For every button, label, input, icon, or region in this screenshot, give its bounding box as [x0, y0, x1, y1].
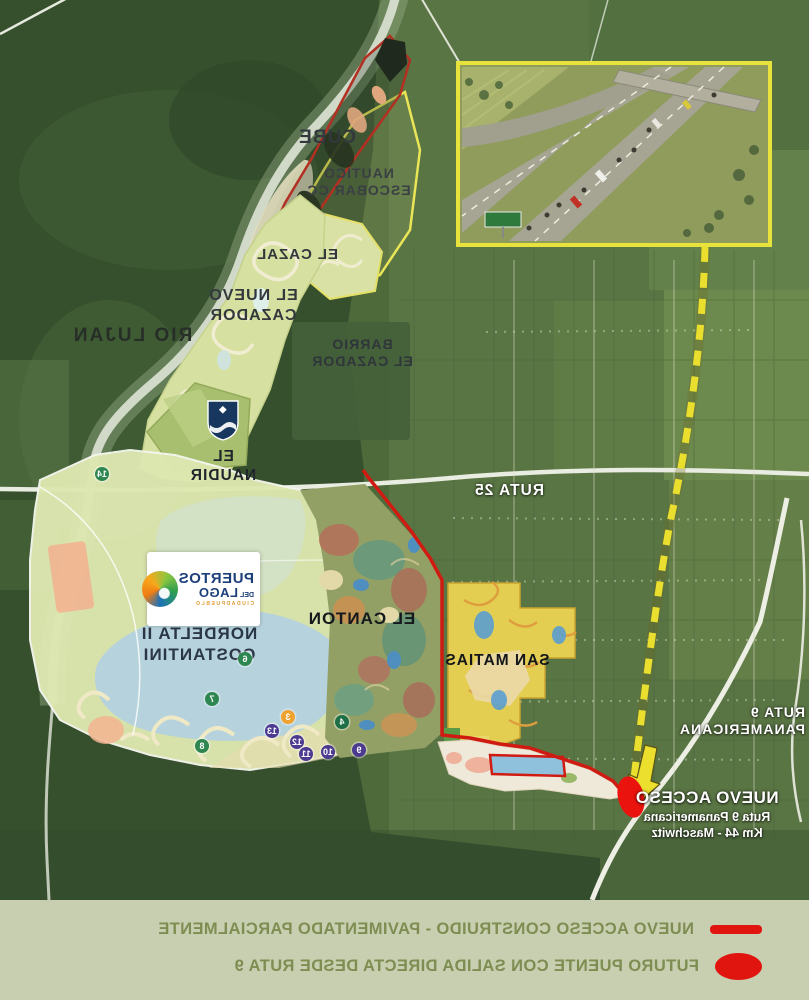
- logo-line2: LAGO: [198, 586, 238, 599]
- label-el-naudir: EL NAUDIR: [177, 448, 269, 486]
- puertos-del-lago-logo: PUERTOS DEL LAGO CIUDADPUEBLO: [147, 552, 260, 626]
- crystal-lagoon: [490, 755, 565, 776]
- el-naudir-shield-icon: [208, 401, 238, 440]
- puertos-logo-globe-icon: [142, 571, 178, 607]
- legend-row-built-access: NUEVO ACCESO CONSTRUIDO - PAVIMENTADO PA…: [0, 920, 809, 939]
- logo-del: DEL: [240, 592, 254, 599]
- label-el-cazal: EL CAZAL: [255, 246, 339, 264]
- nuevo-acceso-title: NUEVO ACCESO: [627, 788, 787, 808]
- label-cube: CUBE: [292, 126, 362, 149]
- lot-badge: 14: [95, 467, 109, 481]
- logo-subtitle: CIUDADPUEBLO: [195, 602, 254, 607]
- legend-label-built-access: NUEVO ACCESO CONSTRUIDO - PAVIMENTADO PA…: [158, 920, 694, 939]
- lot-badge: 7: [205, 692, 219, 706]
- lot-badge: 13: [265, 724, 279, 738]
- label-barrio-el-cazador: BARRIO EL CAZADOR: [307, 336, 417, 370]
- red-line-symbol: [710, 925, 762, 934]
- lot-badge: 9: [352, 743, 366, 757]
- label-ruta-9-panamericana: RUTA 9 PANAMERICANA: [655, 704, 805, 738]
- highway-inset: [458, 63, 770, 245]
- nuevo-acceso-annotation: NUEVO ACCESO Ruta 9 Panamericana Km 44 -…: [627, 788, 787, 840]
- lot-badge: 10: [321, 745, 335, 759]
- nuevo-acceso-line2: Ruta 9 Panamericana: [627, 810, 787, 824]
- label-ruta-25: RUTA 25: [454, 482, 564, 501]
- red-ellipse-symbol: [715, 953, 762, 980]
- nuevo-acceso-line3: Km 44 - Maschwitz: [627, 826, 787, 840]
- label-el-nuevo-cazador: EL NUEVO CAZADOR: [203, 286, 303, 325]
- puertos-logo-text: PUERTOS DEL LAGO CIUDADPUEBLO: [178, 571, 254, 608]
- legend: NUEVO ACCESO CONSTRUIDO - PAVIMENTADO PA…: [0, 900, 809, 1000]
- satellite-map: [0, 0, 809, 900]
- mirrored-map-screenshot: CUBE NAUTICO ESCOBAR CC EL CAZAL EL NUEV…: [0, 0, 809, 1000]
- label-san-matias: SAN MATIAS: [443, 652, 551, 671]
- lot-badge: 6: [238, 652, 252, 666]
- lot-badge: 4: [335, 715, 349, 729]
- lot-badge: 3: [281, 710, 295, 724]
- label-el-canton: EL CANTON: [299, 609, 424, 630]
- legend-row-future-bridge: FUTURO PUENTE CON SALIDA DIRECTA DESDE R…: [0, 953, 809, 980]
- label-rio-lujan: RIO LUJAN: [67, 324, 197, 347]
- label-nautico-escobar: NAUTICO ESCOBAR CC: [306, 165, 411, 199]
- logo-line1: PUERTOS: [178, 571, 254, 586]
- lot-badge: 8: [195, 739, 209, 753]
- legend-label-future-bridge: FUTURO PUENTE CON SALIDA DIRECTA DESDE R…: [234, 957, 699, 976]
- lot-badge: 11: [299, 747, 313, 761]
